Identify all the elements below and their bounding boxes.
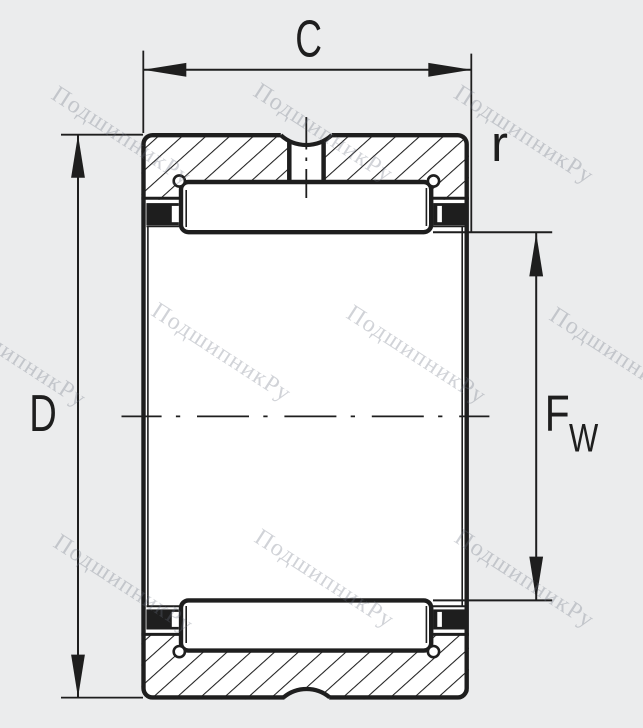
- svg-text:C: C: [295, 9, 322, 68]
- svg-text:W: W: [569, 416, 598, 461]
- svg-text:F: F: [545, 385, 570, 442]
